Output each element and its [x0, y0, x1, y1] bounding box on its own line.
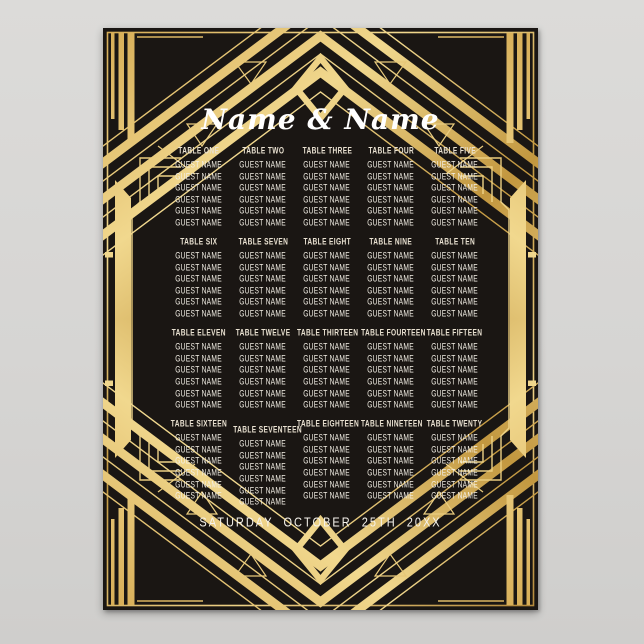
guest-name: GUEST NAME — [423, 386, 487, 398]
guest-name: GUEST NAME — [167, 169, 231, 181]
table-column: TABLE TWENTYGUEST NAMEGUEST NAMEGUEST NA… — [423, 413, 487, 500]
guest-name: GUEST NAME — [359, 374, 423, 386]
guest-name: GUEST NAME — [423, 397, 487, 409]
guest-name: GUEST NAME — [295, 192, 359, 204]
guest-name: GUEST NAME — [231, 374, 295, 386]
guest-name: GUEST NAME — [359, 386, 423, 398]
table-label: TABLE THREE — [295, 140, 359, 150]
guest-name: GUEST NAME — [423, 260, 487, 272]
guest-name: GUEST NAME — [231, 397, 295, 409]
guest-name: GUEST NAME — [231, 271, 295, 283]
guest-name: GUEST NAME — [295, 362, 359, 374]
guest-name: GUEST NAME — [167, 203, 231, 215]
guest-name: GUEST NAME — [167, 453, 231, 465]
table-column: TABLE SEVENGUEST NAMEGUEST NAMEGUEST NAM… — [231, 231, 295, 318]
event-date: SATURDAY OCTOBER 25TH 20XX — [103, 513, 538, 531]
table-label: TABLE TWO — [231, 140, 295, 150]
table-label: TABLE FIVE — [423, 140, 487, 150]
guest-name: GUEST NAME — [423, 215, 487, 227]
guest-name: GUEST NAME — [423, 283, 487, 295]
table-column: TABLE FOURTEENGUEST NAMEGUEST NAMEGUEST … — [359, 322, 423, 409]
guest-name: GUEST NAME — [167, 351, 231, 363]
guest-name: GUEST NAME — [295, 157, 359, 169]
guest-name: GUEST NAME — [167, 306, 231, 318]
seating-chart-poster[interactable]: Name & Name TABLE ONEGUEST NAMEGUEST NAM… — [103, 28, 538, 610]
guest-name: GUEST NAME — [423, 180, 487, 192]
guest-name: GUEST NAME — [231, 436, 295, 448]
seating-grid: TABLE ONEGUEST NAMEGUEST NAMEGUEST NAMEG… — [167, 140, 487, 504]
table-label: TABLE EIGHT — [295, 231, 359, 241]
table-label: TABLE FOUR — [359, 140, 423, 150]
guest-name: GUEST NAME — [295, 271, 359, 283]
table-column: TABLE TWELVEGUEST NAMEGUEST NAMEGUEST NA… — [231, 322, 295, 409]
guest-name: GUEST NAME — [231, 260, 295, 272]
guest-name: GUEST NAME — [423, 271, 487, 283]
guest-name: GUEST NAME — [423, 203, 487, 215]
guest-name: GUEST NAME — [295, 386, 359, 398]
guest-name: GUEST NAME — [167, 271, 231, 283]
guest-name: GUEST NAME — [231, 386, 295, 398]
guest-name: GUEST NAME — [423, 374, 487, 386]
guest-name: GUEST NAME — [359, 271, 423, 283]
guest-name: GUEST NAME — [423, 339, 487, 351]
guest-name: GUEST NAME — [231, 248, 295, 260]
guest-name: GUEST NAME — [295, 465, 359, 477]
guest-name: GUEST NAME — [359, 294, 423, 306]
table-column: TABLE FIFTEENGUEST NAMEGUEST NAMEGUEST N… — [423, 322, 487, 409]
guest-name: GUEST NAME — [295, 397, 359, 409]
guest-name: GUEST NAME — [231, 306, 295, 318]
guest-name: GUEST NAME — [359, 157, 423, 169]
guest-name: GUEST NAME — [167, 442, 231, 454]
table-row-group: TABLE ELEVENGUEST NAMEGUEST NAMEGUEST NA… — [167, 322, 487, 409]
guest-name: GUEST NAME — [231, 471, 295, 483]
guest-name: GUEST NAME — [167, 215, 231, 227]
guest-name: GUEST NAME — [359, 397, 423, 409]
guest-name: GUEST NAME — [423, 192, 487, 204]
guest-name: GUEST NAME — [295, 248, 359, 260]
guest-name: GUEST NAME — [359, 169, 423, 181]
guest-name: GUEST NAME — [167, 430, 231, 442]
guest-name: GUEST NAME — [295, 477, 359, 489]
guest-name: GUEST NAME — [295, 180, 359, 192]
guest-name: GUEST NAME — [167, 374, 231, 386]
guest-name: GUEST NAME — [167, 283, 231, 295]
guest-name: GUEST NAME — [359, 215, 423, 227]
table-column: TABLE ELEVENGUEST NAMEGUEST NAMEGUEST NA… — [167, 322, 231, 409]
guest-name: GUEST NAME — [423, 351, 487, 363]
guest-name: GUEST NAME — [359, 453, 423, 465]
guest-name: GUEST NAME — [167, 192, 231, 204]
guest-name: GUEST NAME — [231, 157, 295, 169]
guest-name: GUEST NAME — [167, 397, 231, 409]
table-column: TABLE TWOGUEST NAMEGUEST NAMEGUEST NAMEG… — [231, 140, 295, 227]
guest-name: GUEST NAME — [359, 339, 423, 351]
table-label: TABLE SEVEN — [231, 231, 295, 241]
guest-name: GUEST NAME — [167, 248, 231, 260]
guest-name: GUEST NAME — [231, 169, 295, 181]
guest-name: GUEST NAME — [359, 477, 423, 489]
guest-name: GUEST NAME — [295, 215, 359, 227]
guest-name: GUEST NAME — [295, 351, 359, 363]
guest-name: GUEST NAME — [423, 248, 487, 260]
table-label: TABLE TWENTY — [423, 413, 487, 423]
guest-name: GUEST NAME — [231, 339, 295, 351]
guest-name: GUEST NAME — [423, 294, 487, 306]
table-label: TABLE NINE — [359, 231, 423, 241]
guest-name: GUEST NAME — [359, 362, 423, 374]
table-row-group: TABLE SIXTEENGUEST NAMEGUEST NAMEGUEST N… — [167, 413, 487, 500]
guest-name: GUEST NAME — [423, 477, 487, 489]
table-column: TABLE SEVENTEENGUEST NAMEGUEST NAMEGUEST… — [231, 419, 295, 506]
guest-name: GUEST NAME — [295, 294, 359, 306]
guest-name: GUEST NAME — [231, 494, 295, 506]
guest-name: GUEST NAME — [295, 453, 359, 465]
guest-name: GUEST NAME — [231, 362, 295, 374]
guest-name: GUEST NAME — [423, 169, 487, 181]
guest-name: GUEST NAME — [231, 192, 295, 204]
table-column: TABLE THIRTEENGUEST NAMEGUEST NAMEGUEST … — [295, 322, 359, 409]
guest-name: GUEST NAME — [295, 430, 359, 442]
guest-name: GUEST NAME — [167, 260, 231, 272]
guest-name: GUEST NAME — [167, 477, 231, 489]
guest-name: GUEST NAME — [231, 351, 295, 363]
table-label: TABLE EIGHTEEN — [295, 413, 359, 423]
guest-name: GUEST NAME — [359, 465, 423, 477]
guest-name: GUEST NAME — [231, 203, 295, 215]
guest-name: GUEST NAME — [359, 351, 423, 363]
guest-name: GUEST NAME — [359, 430, 423, 442]
table-label: TABLE NINETEEN — [359, 413, 423, 423]
guest-name: GUEST NAME — [359, 192, 423, 204]
guest-name: GUEST NAME — [231, 483, 295, 495]
table-label: TABLE SIXTEEN — [167, 413, 231, 423]
guest-name: GUEST NAME — [167, 488, 231, 500]
guest-name: GUEST NAME — [359, 306, 423, 318]
guest-name: GUEST NAME — [423, 453, 487, 465]
table-column: TABLE SIXTEENGUEST NAMEGUEST NAMEGUEST N… — [167, 413, 231, 500]
table-label: TABLE FIFTEEN — [423, 322, 487, 332]
guest-name: GUEST NAME — [423, 157, 487, 169]
guest-name: GUEST NAME — [295, 203, 359, 215]
guest-name: GUEST NAME — [359, 442, 423, 454]
guest-name: GUEST NAME — [167, 180, 231, 192]
table-label: TABLE TWELVE — [231, 322, 295, 332]
guest-name: GUEST NAME — [295, 260, 359, 272]
guest-name: GUEST NAME — [359, 283, 423, 295]
guest-name: GUEST NAME — [167, 294, 231, 306]
guest-name: GUEST NAME — [295, 169, 359, 181]
guest-name: GUEST NAME — [359, 248, 423, 260]
guest-name: GUEST NAME — [231, 215, 295, 227]
guest-name: GUEST NAME — [231, 448, 295, 460]
guest-name: GUEST NAME — [167, 386, 231, 398]
guest-name: GUEST NAME — [423, 362, 487, 374]
table-label: TABLE ELEVEN — [167, 322, 231, 332]
table-label: TABLE THIRTEEN — [295, 322, 359, 332]
guest-name: GUEST NAME — [423, 442, 487, 454]
guest-name: GUEST NAME — [423, 430, 487, 442]
table-column: TABLE FIVEGUEST NAMEGUEST NAMEGUEST NAME… — [423, 140, 487, 227]
guest-name: GUEST NAME — [167, 362, 231, 374]
table-column: TABLE NINETEENGUEST NAMEGUEST NAMEGUEST … — [359, 413, 423, 500]
table-row-group: TABLE ONEGUEST NAMEGUEST NAMEGUEST NAMEG… — [167, 140, 487, 227]
guest-name: GUEST NAME — [295, 306, 359, 318]
guest-name: GUEST NAME — [167, 465, 231, 477]
guest-name: GUEST NAME — [359, 488, 423, 500]
table-column: TABLE SIXGUEST NAMEGUEST NAMEGUEST NAMEG… — [167, 231, 231, 318]
guest-name: GUEST NAME — [295, 283, 359, 295]
table-column: TABLE TENGUEST NAMEGUEST NAMEGUEST NAMEG… — [423, 231, 487, 318]
table-label: TABLE TEN — [423, 231, 487, 241]
table-label: TABLE FOURTEEN — [359, 322, 423, 332]
table-label: TABLE SIX — [167, 231, 231, 241]
guest-name: GUEST NAME — [295, 442, 359, 454]
guest-name: GUEST NAME — [359, 260, 423, 272]
table-label: TABLE SEVENTEEN — [231, 419, 295, 429]
guest-name: GUEST NAME — [423, 465, 487, 477]
guest-name: GUEST NAME — [359, 180, 423, 192]
guest-name: GUEST NAME — [295, 488, 359, 500]
guest-name: GUEST NAME — [231, 294, 295, 306]
event-date-text: SATURDAY OCTOBER 25TH 20XX — [199, 516, 441, 530]
guest-name: GUEST NAME — [359, 203, 423, 215]
guest-name: GUEST NAME — [295, 339, 359, 351]
table-column: TABLE EIGHTEENGUEST NAMEGUEST NAMEGUEST … — [295, 413, 359, 500]
guest-name: GUEST NAME — [423, 488, 487, 500]
guest-name: GUEST NAME — [295, 374, 359, 386]
table-row-group: TABLE SIXGUEST NAMEGUEST NAMEGUEST NAMEG… — [167, 231, 487, 318]
table-column: TABLE EIGHTGUEST NAMEGUEST NAMEGUEST NAM… — [295, 231, 359, 318]
guest-name: GUEST NAME — [167, 339, 231, 351]
couple-names-title: Name & Name — [103, 102, 538, 138]
guest-name: GUEST NAME — [231, 459, 295, 471]
guest-name: GUEST NAME — [423, 306, 487, 318]
guest-name: GUEST NAME — [231, 283, 295, 295]
table-column: TABLE ONEGUEST NAMEGUEST NAMEGUEST NAMEG… — [167, 140, 231, 227]
table-column: TABLE NINEGUEST NAMEGUEST NAMEGUEST NAME… — [359, 231, 423, 318]
table-column: TABLE FOURGUEST NAMEGUEST NAMEGUEST NAME… — [359, 140, 423, 227]
guest-name: GUEST NAME — [231, 180, 295, 192]
guest-name: GUEST NAME — [167, 157, 231, 169]
table-label: TABLE ONE — [167, 140, 231, 150]
table-column: TABLE THREEGUEST NAMEGUEST NAMEGUEST NAM… — [295, 140, 359, 227]
